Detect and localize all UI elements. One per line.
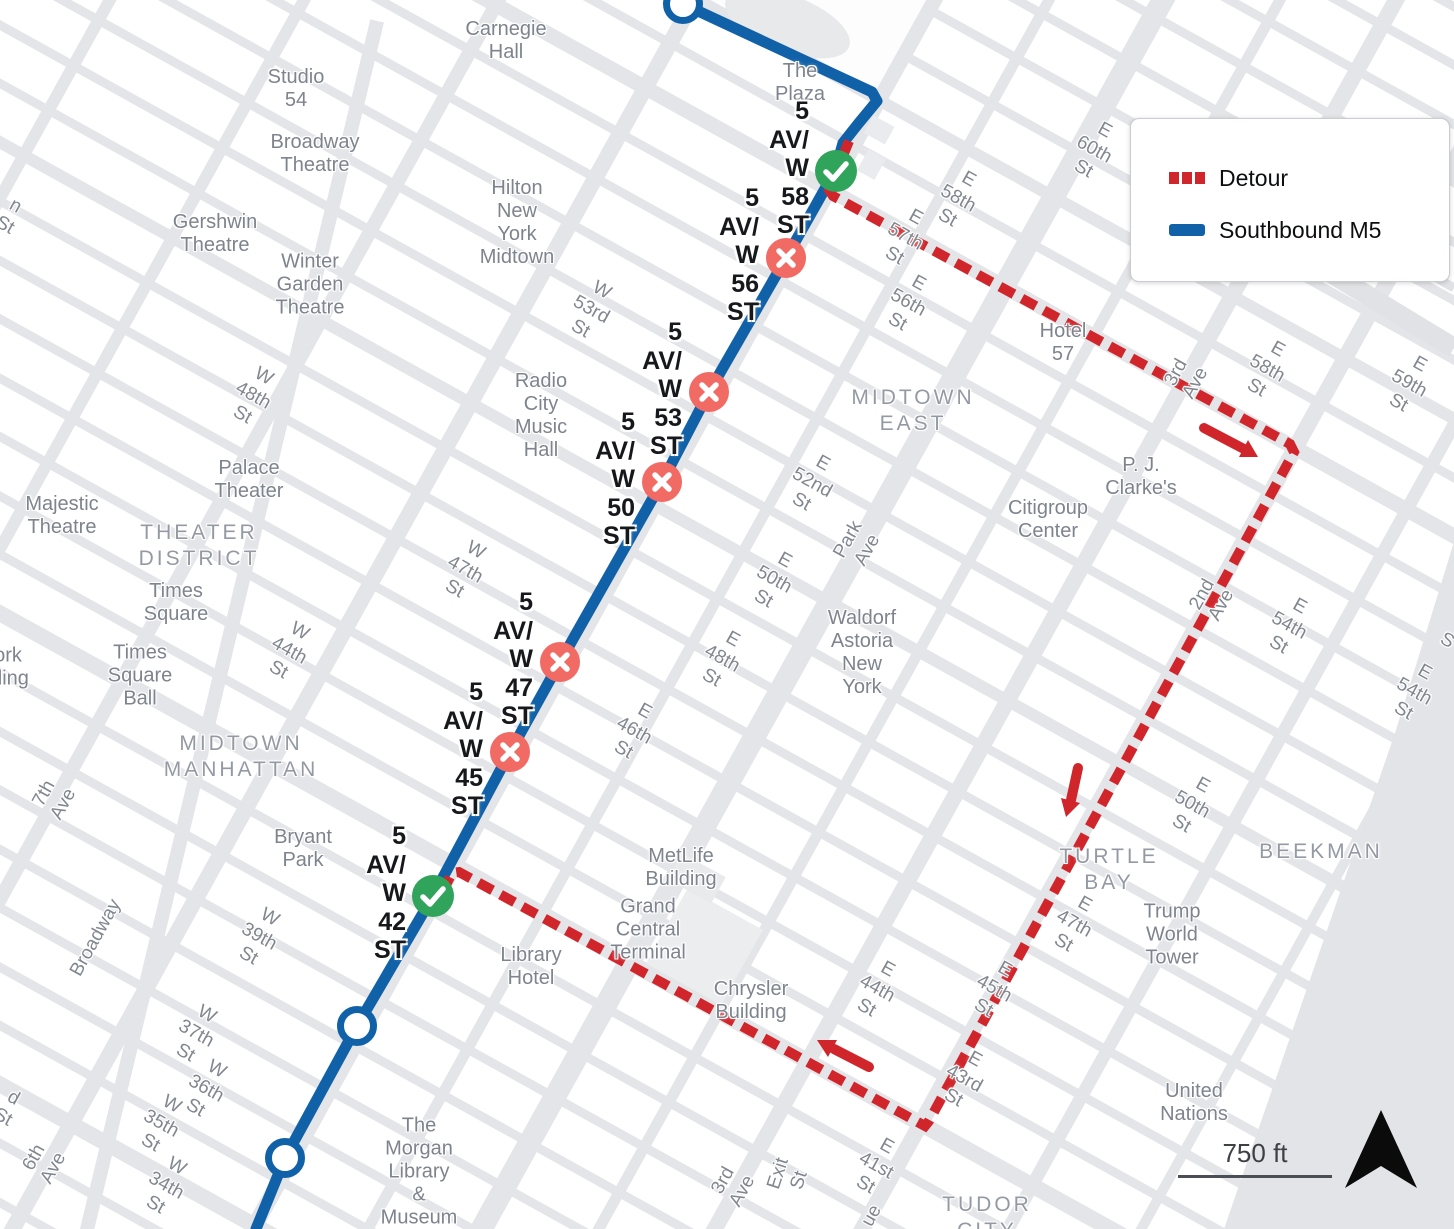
poi-label: Bryant Park [274, 826, 332, 872]
poi-label: Studio 54 [268, 66, 325, 112]
detour-arrow-icon [1204, 428, 1244, 449]
stop-marker-skipped [642, 462, 682, 502]
legend-item-detour: Detour [1169, 166, 1288, 190]
north-arrow-icon [1336, 1100, 1426, 1195]
x-icon [540, 642, 580, 682]
poi-label: Radio City Music Hall [515, 370, 567, 462]
poi-label: Chrysler Building [714, 978, 788, 1024]
detour-map: MIDTOWN EASTTHEATER DISTRICTMIDTOWN MANH… [0, 0, 1454, 1229]
poi-label: Carnegie Hall [465, 18, 546, 64]
poi-label: Library Hotel [500, 944, 561, 990]
neighborhood-label: BEEKMAN [1259, 839, 1383, 865]
neighborhood-label: MIDTOWN EAST [851, 385, 974, 438]
detour-arrow-icon [834, 1049, 869, 1067]
m5-line-swatch-icon [1169, 224, 1205, 236]
poi-label: Palace Theater [215, 457, 284, 503]
detour-arrow-head-icon [1061, 798, 1080, 817]
check-icon [412, 875, 454, 917]
poi-label: ork [0, 645, 22, 668]
poi-label: Waldorf Astoria New York [828, 607, 896, 699]
stop-label: 5 AV/ W 56 ST [719, 184, 759, 327]
poi-label: ding [0, 668, 29, 691]
stop-label: 5 AV/ W 42 ST [366, 822, 406, 965]
poi-label: Hotel 57 [1040, 320, 1087, 366]
legend: Detour Southbound M5 [1130, 118, 1450, 282]
poi-label: Citigroup Center [1008, 497, 1088, 543]
stop-marker-skipped [689, 372, 729, 412]
stop-marker-skipped [540, 642, 580, 682]
stop-marker-skipped [766, 238, 806, 278]
stop-marker-regular [265, 1138, 305, 1178]
stop-label: 5 AV/ W 53 ST [642, 318, 682, 461]
poi-label: Times Square Ball [108, 642, 173, 711]
check-icon [815, 150, 857, 192]
poi-label: Majestic Theatre [25, 493, 98, 539]
poi-label: United Nations [1160, 1080, 1228, 1126]
stop-label: 5 AV/ W 58 ST [769, 97, 809, 240]
poi-label: MetLife Building [645, 845, 716, 891]
poi-label: Broadway Theatre [271, 131, 360, 177]
stop-marker-served [412, 875, 454, 917]
scale-bar-line [1178, 1175, 1332, 1178]
stop-marker-served [815, 150, 857, 192]
detour-line-swatch-icon [1169, 172, 1205, 184]
x-icon [642, 462, 682, 502]
neighborhood-label: TUDOR CITY [942, 1192, 1032, 1229]
scale-bar: 750 ft [1178, 1138, 1332, 1178]
legend-item-southbound-m5: Southbound M5 [1169, 218, 1381, 242]
stop-label: 5 AV/ W 45 ST [443, 678, 483, 821]
poi-label: The Morgan Library & Museum [381, 1115, 458, 1229]
stop-marker-skipped [490, 732, 530, 772]
neighborhood-label: MIDTOWN MANHATTAN [164, 731, 319, 784]
poi-label: Winter Garden Theatre [276, 251, 345, 320]
stop-label: 5 AV/ W 47 ST [493, 588, 533, 731]
legend-label-southbound-m5: Southbound M5 [1219, 217, 1381, 244]
stop-label: 5 AV/ W 50 ST [595, 408, 635, 551]
detour-arrow-icon [1071, 768, 1078, 800]
poi-label: Grand Central Terminal [610, 896, 686, 965]
legend-label-detour: Detour [1219, 165, 1288, 192]
x-icon [766, 238, 806, 278]
poi-label: Trump World Tower [1143, 901, 1200, 970]
poi-label: Gershwin Theatre [173, 211, 257, 257]
poi-label: P. J. Clarke's [1105, 454, 1177, 500]
x-icon [689, 372, 729, 412]
neighborhood-label: THEATER DISTRICT [139, 520, 260, 573]
poi-label: Hilton New York Midtown [480, 177, 554, 269]
scale-bar-label: 750 ft [1178, 1138, 1332, 1169]
x-icon [490, 732, 530, 772]
stop-marker-regular [337, 1006, 377, 1046]
poi-label: Times Square [144, 580, 208, 626]
